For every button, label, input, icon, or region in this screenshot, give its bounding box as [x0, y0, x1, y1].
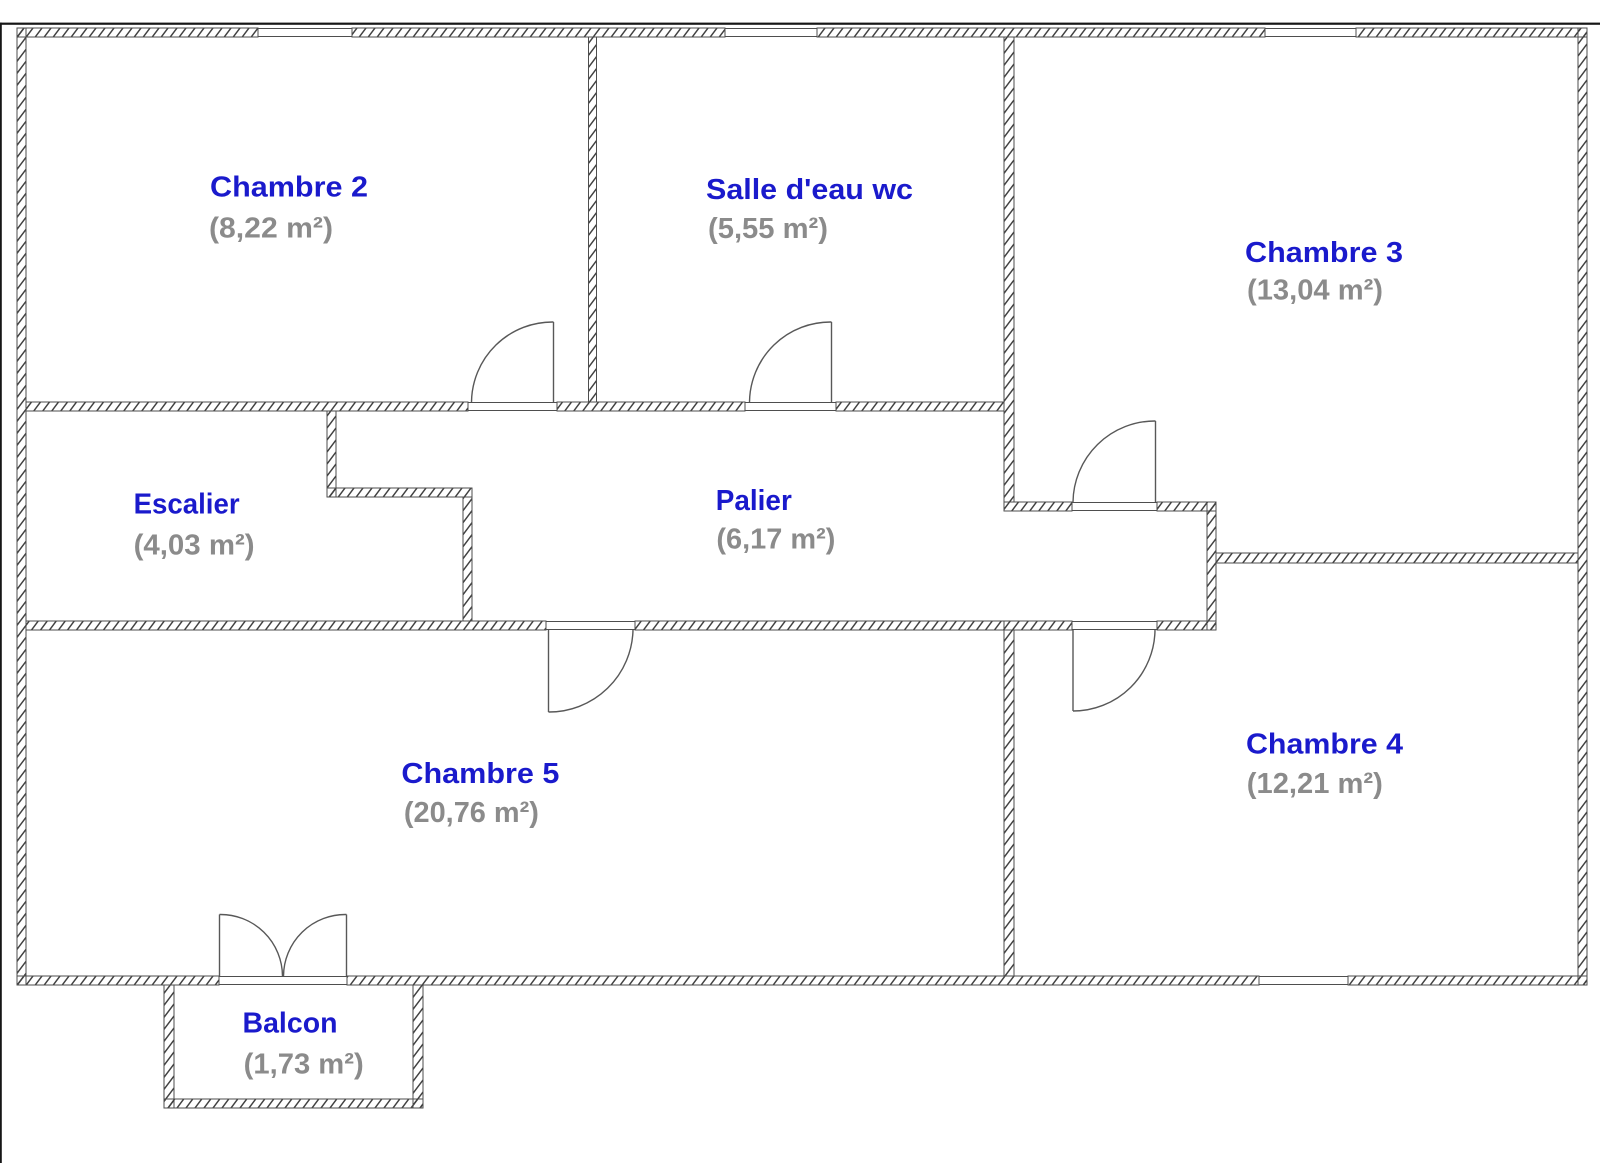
svg-text:(1,73 m²): (1,73 m²) — [244, 1049, 364, 1081]
svg-text:Chambre 4: Chambre 4 — [1246, 729, 1403, 761]
svg-text:(13,04 m²): (13,04 m²) — [1247, 275, 1383, 307]
svg-text:(8,22 m²): (8,22 m²) — [209, 213, 333, 245]
svg-text:Escalier: Escalier — [134, 489, 240, 521]
svg-text:Chambre 3: Chambre 3 — [1245, 237, 1403, 269]
svg-text:Chambre 2: Chambre 2 — [210, 172, 368, 204]
svg-text:Balcon: Balcon — [243, 1008, 338, 1040]
svg-text:Chambre 5: Chambre 5 — [401, 758, 559, 790]
svg-text:(4,03 m²): (4,03 m²) — [134, 529, 255, 561]
svg-text:(12,21 m²): (12,21 m²) — [1247, 768, 1383, 800]
svg-text:Salle d'eau wc: Salle d'eau wc — [706, 174, 913, 206]
svg-text:(6,17 m²): (6,17 m²) — [716, 524, 835, 556]
svg-text:(5,55 m²): (5,55 m²) — [708, 213, 828, 245]
svg-text:Palier: Palier — [716, 485, 792, 517]
svg-text:(20,76 m²): (20,76 m²) — [404, 797, 539, 829]
